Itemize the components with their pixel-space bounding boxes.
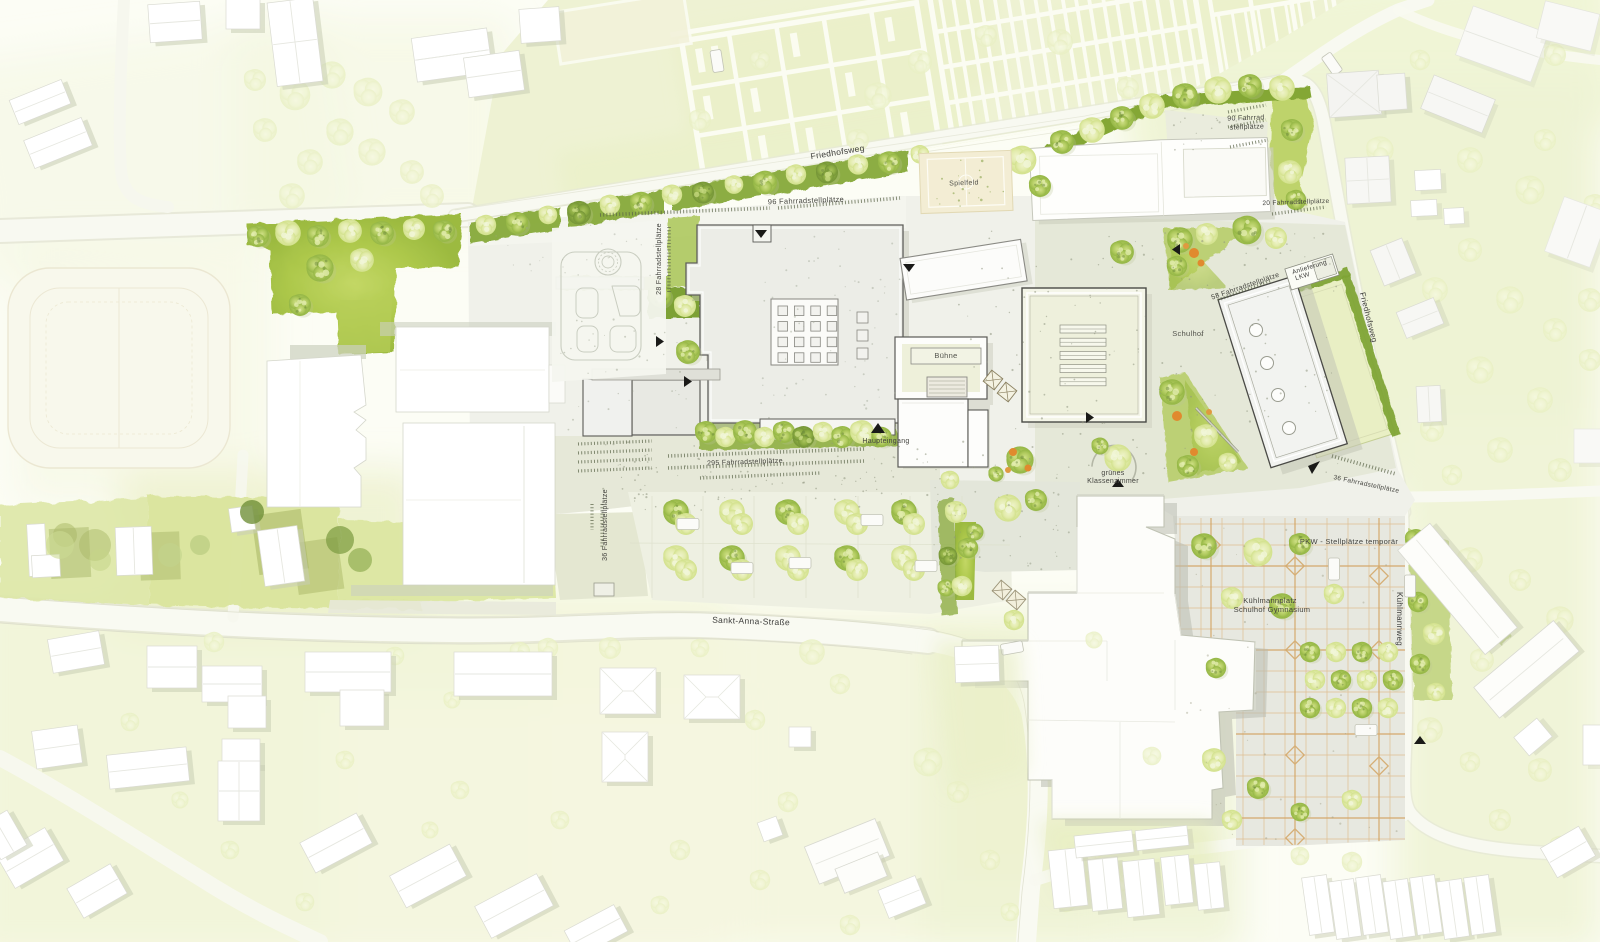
svg-text:Kühlmannplatz: Kühlmannplatz [1243, 596, 1297, 605]
svg-text:90 Fahrrad: 90 Fahrrad [1227, 114, 1264, 122]
svg-text:Schulhof Gymnasium: Schulhof Gymnasium [1234, 605, 1311, 614]
svg-text:28 Fahrradstellplätze: 28 Fahrradstellplätze [656, 223, 663, 295]
svg-text:stellplätze: stellplätze [1230, 123, 1265, 131]
svg-text:Kühlmannweg: Kühlmannweg [1395, 592, 1404, 646]
svg-text:Klassenzimmer: Klassenzimmer [1087, 478, 1139, 485]
svg-text:Spielfeld: Spielfeld [949, 179, 979, 187]
svg-text:PKW - Stellplätze temporär: PKW - Stellplätze temporär [1300, 537, 1398, 546]
svg-text:36 Fahrradstellplätze: 36 Fahrradstellplätze [602, 489, 609, 561]
svg-text:Bühne: Bühne [934, 351, 957, 360]
svg-text:grünes: grünes [1101, 470, 1124, 477]
svg-text:Schulhof: Schulhof [1172, 329, 1204, 338]
svg-text:Haupteingang: Haupteingang [862, 438, 909, 445]
